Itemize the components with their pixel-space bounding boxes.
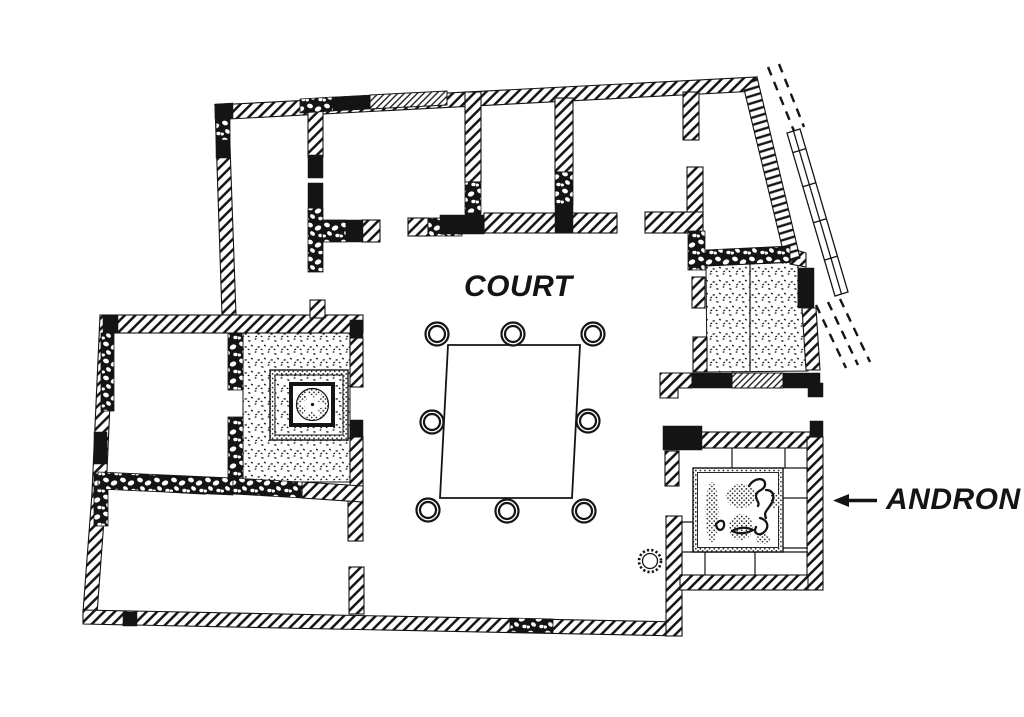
andron-mosaic-panel [693,468,783,552]
black-segment [692,373,732,388]
rubble-segment [308,208,323,272]
wall-segment [665,451,679,486]
rubble-segment [228,333,243,390]
andron-label: ANDRON [833,483,1021,517]
court-label: COURT [464,270,573,304]
andron-east-wall [807,437,823,590]
house-floor-plan: COURT ANDRON [0,0,1024,717]
rosette-center [311,403,314,406]
wall-segment [302,482,363,502]
court-altar-outline [440,345,580,498]
well-circle [643,554,658,569]
wall-segment [732,373,783,388]
column-base [499,503,515,519]
column-base [420,502,436,518]
black-segment [798,268,814,308]
column-base [424,414,440,430]
wall-segment [408,218,428,236]
wall-segment [362,220,380,242]
well [639,550,661,572]
wall-segment [645,212,703,233]
black-segment [350,420,363,437]
street-side-wall [744,77,800,263]
rubble-segment [688,231,705,270]
wall-segment [693,337,707,372]
pebble-mosaic-rosette [270,370,348,440]
rubble-segment [101,333,114,411]
wall-segment [215,77,757,119]
wall-segment [555,98,573,172]
black-segment [810,421,823,437]
rubble-segment [465,182,481,213]
black-segment [123,612,137,626]
wall-segment [348,498,363,541]
rubble-segment [705,246,790,266]
rubble-segment [216,118,230,142]
rubble-segment [300,97,333,113]
plan-drawing [0,0,1024,717]
black-segment [103,315,118,333]
black-segment [308,155,323,178]
andron-south-wall [680,575,808,590]
black-segment [350,320,363,338]
street-dash [779,64,804,127]
rubble-segment [555,172,573,205]
wall-segment [465,92,481,182]
andron-label-text: ANDRON [886,483,1021,517]
northeast-paved-rooms [706,262,808,372]
rubble-segment [322,220,346,242]
column-base [585,326,601,342]
street-dash [840,299,870,362]
rubble-segment [510,618,553,633]
rubble-segment [98,472,233,495]
left-arrow-icon [833,492,877,509]
black-segment [808,383,823,397]
wall-segment [692,277,705,308]
black-segment [216,140,230,158]
wall-segment [349,567,364,614]
wall-segment [83,610,682,636]
black-segment [440,215,484,234]
black-segment [346,220,363,242]
andron-north-wall [700,432,810,448]
street-dash [768,67,794,131]
rubble-segment [233,478,302,498]
wall-pier [310,300,325,318]
column-base [429,326,445,342]
street-dash [828,302,858,365]
wall-segment [350,338,363,387]
black-segment [555,205,573,233]
column-base [580,413,596,429]
black-segment [308,183,323,208]
black-segment [215,103,233,119]
column-base [505,326,521,342]
street-dash [816,305,846,368]
black-segment [94,432,107,464]
wall-segment [660,373,692,398]
wall-segment [683,92,699,140]
wall-segment [484,213,617,233]
wall-segment [350,437,363,493]
black-segment [333,95,370,111]
andron-door-jamb [663,426,702,450]
andron-floor [682,448,808,575]
column-base [576,503,592,519]
